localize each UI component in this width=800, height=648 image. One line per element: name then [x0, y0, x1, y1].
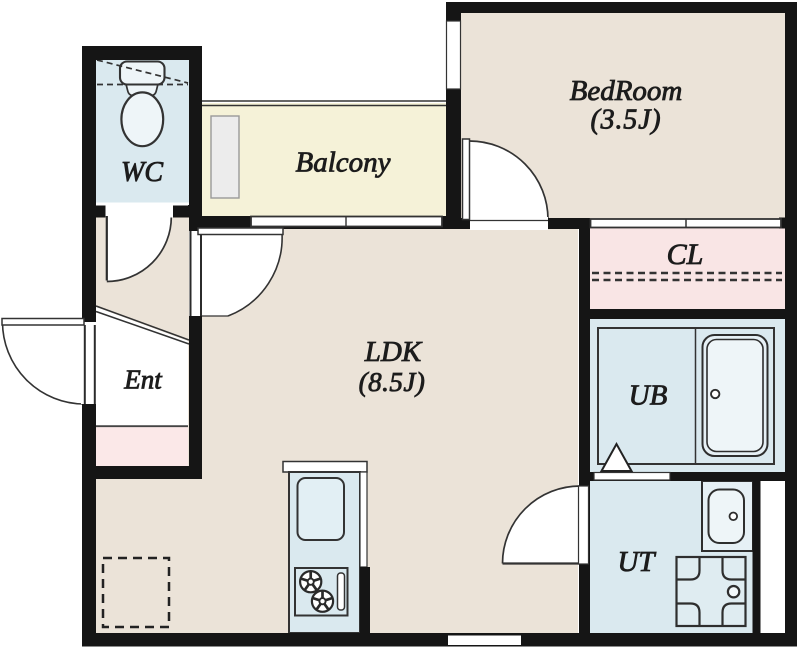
svg-text:UB: UB: [629, 380, 668, 412]
svg-text:CL: CL: [667, 238, 704, 271]
svg-text:WC: WC: [121, 157, 163, 188]
svg-text:Balcony: Balcony: [295, 147, 390, 179]
svg-text:BedRoom: BedRoom: [570, 75, 683, 107]
svg-text:Ent: Ent: [123, 365, 163, 395]
svg-text:(3.5J): (3.5J): [591, 105, 662, 136]
svg-text:(8.5J): (8.5J): [359, 367, 426, 397]
svg-text:UT: UT: [617, 546, 656, 578]
svg-text:LDK: LDK: [364, 336, 423, 368]
